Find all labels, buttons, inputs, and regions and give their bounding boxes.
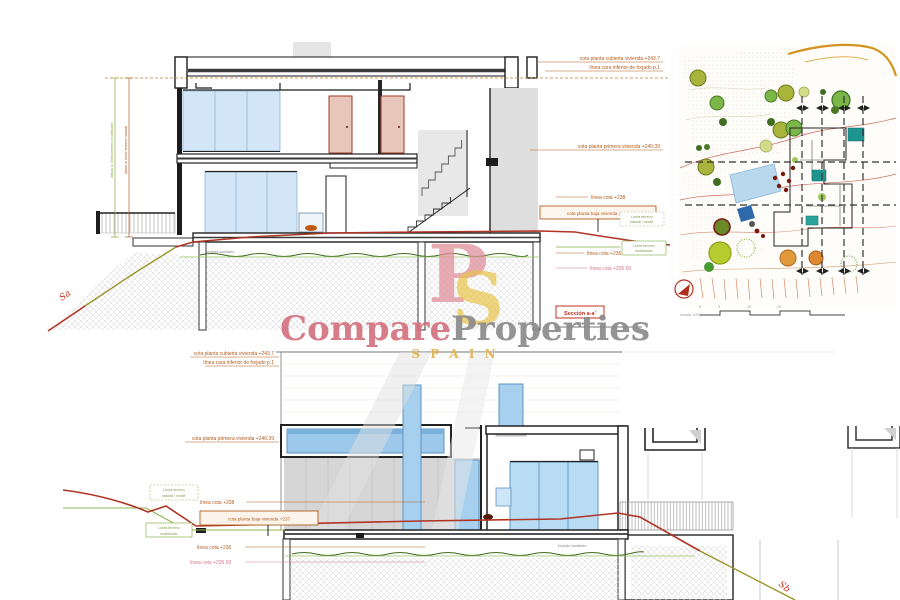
svg-text:modificado: modificado xyxy=(635,249,652,253)
svg-text:natural / modif.: natural / modif. xyxy=(630,220,654,224)
watermark-sub: S P A I N xyxy=(411,347,498,361)
line-236-label-b: línea cota +236 xyxy=(197,545,232,551)
first-floor-slab xyxy=(177,154,417,168)
slope-label-b: Sb xyxy=(776,580,792,595)
height-label-natural: altura s/ línea terreno natural xyxy=(124,126,128,175)
chimney xyxy=(293,42,331,58)
svg-text:Línea terreno: Línea terreno xyxy=(158,526,179,530)
tall-window-1 xyxy=(403,385,421,530)
line-238-label-b: línea cota +238 xyxy=(200,500,235,506)
svg-text:natural / modif.: natural / modif. xyxy=(162,494,186,498)
roof-soffit-label-a: línea cara inferior de forjado p.1 xyxy=(589,65,660,71)
watermark-brand-properties: Properties xyxy=(451,309,650,349)
watermark-brand-compare: Compare xyxy=(280,309,451,349)
ground-door xyxy=(326,176,346,234)
height-label-modified: altura s/ línea terreno modificado xyxy=(110,122,114,177)
scale-label: escala 1/200 xyxy=(680,313,702,317)
upper-doors xyxy=(329,96,404,153)
first-floor-label-b: cota planta primera vivienda +240.39 xyxy=(192,436,274,442)
vegetation-texture xyxy=(682,48,806,162)
line-23550-label-a: línea cota +235.50 xyxy=(590,266,632,272)
ground-window xyxy=(205,172,297,235)
staircase xyxy=(405,130,470,235)
terrain-modified-tag-a: Línea terreno modificado xyxy=(622,241,666,255)
svg-text:Línea terreno: Línea terreno xyxy=(633,244,654,248)
section-a-drawing: altura s/ línea terreno modificado altur… xyxy=(48,42,672,331)
roof-slab xyxy=(175,57,537,88)
line-238-label-a: línea cota +238 xyxy=(591,195,626,201)
roof-soffit-label-b: línea cara inferior de forjado p.1 xyxy=(203,360,274,366)
site-plan: 0 5 10 20 escala 1/200 xyxy=(675,45,898,317)
scale-tick-5: 5 xyxy=(718,305,720,309)
scale-tick-0: 0 xyxy=(699,305,701,309)
facade-grid xyxy=(282,364,620,412)
terrain-natural-tag-b: Línea terreno natural / modif. xyxy=(150,485,198,500)
svg-text:modificado: modificado xyxy=(160,532,177,536)
crawl-space-label-b: forjado sanitario xyxy=(558,543,587,548)
architectural-sheet: altura s/ línea terreno modificado altur… xyxy=(0,0,900,600)
planter-1 xyxy=(645,428,705,450)
crawl-space-label-a: forjado sanitario xyxy=(206,249,235,254)
terrain-natural-tag-a: Línea terreno natural / modif. xyxy=(620,212,664,226)
fireplace xyxy=(299,213,323,232)
svg-text:Línea terreno: Línea terreno xyxy=(631,215,652,219)
roof-level-label-a: cota planta cubierta vivienda +243.7 xyxy=(580,56,660,62)
slope-label-a: Sa xyxy=(58,289,73,304)
scale-tick-10: 10 xyxy=(747,305,751,309)
first-floor-label-a: cota planta primera vivienda +240.39 xyxy=(578,144,660,150)
scale-tick-20: 20 xyxy=(777,305,781,309)
svg-text:Línea terreno: Línea terreno xyxy=(163,488,184,492)
drawing-svg: altura s/ línea terreno modificado altur… xyxy=(0,0,900,600)
line-23550-label-b: línea cota +235.50 xyxy=(190,560,232,566)
terrain-modified-tag-b: Línea terreno modificado xyxy=(146,523,192,537)
right-retaining-wall xyxy=(486,88,538,235)
watermark-brand: CompareProperties xyxy=(280,309,650,349)
crawl-space-line-b xyxy=(292,552,644,556)
section-a-annotations: cota planta cubierta vivienda +243.7 lín… xyxy=(530,56,666,272)
section-b-drawing: cota planta cubierta vivienda +243.7 lín… xyxy=(63,351,900,600)
line-236-label-a: línea cota +236 xyxy=(587,251,622,257)
roof-level-label-b: cota planta cubierta vivienda +243.7 xyxy=(194,351,274,357)
ground-floor-label-b: cota planta baja vivienda +237 xyxy=(228,517,291,522)
upper-window xyxy=(183,90,280,152)
ground-structure-b xyxy=(196,528,838,600)
foundation-box xyxy=(625,535,733,600)
planter-2 xyxy=(848,426,900,448)
